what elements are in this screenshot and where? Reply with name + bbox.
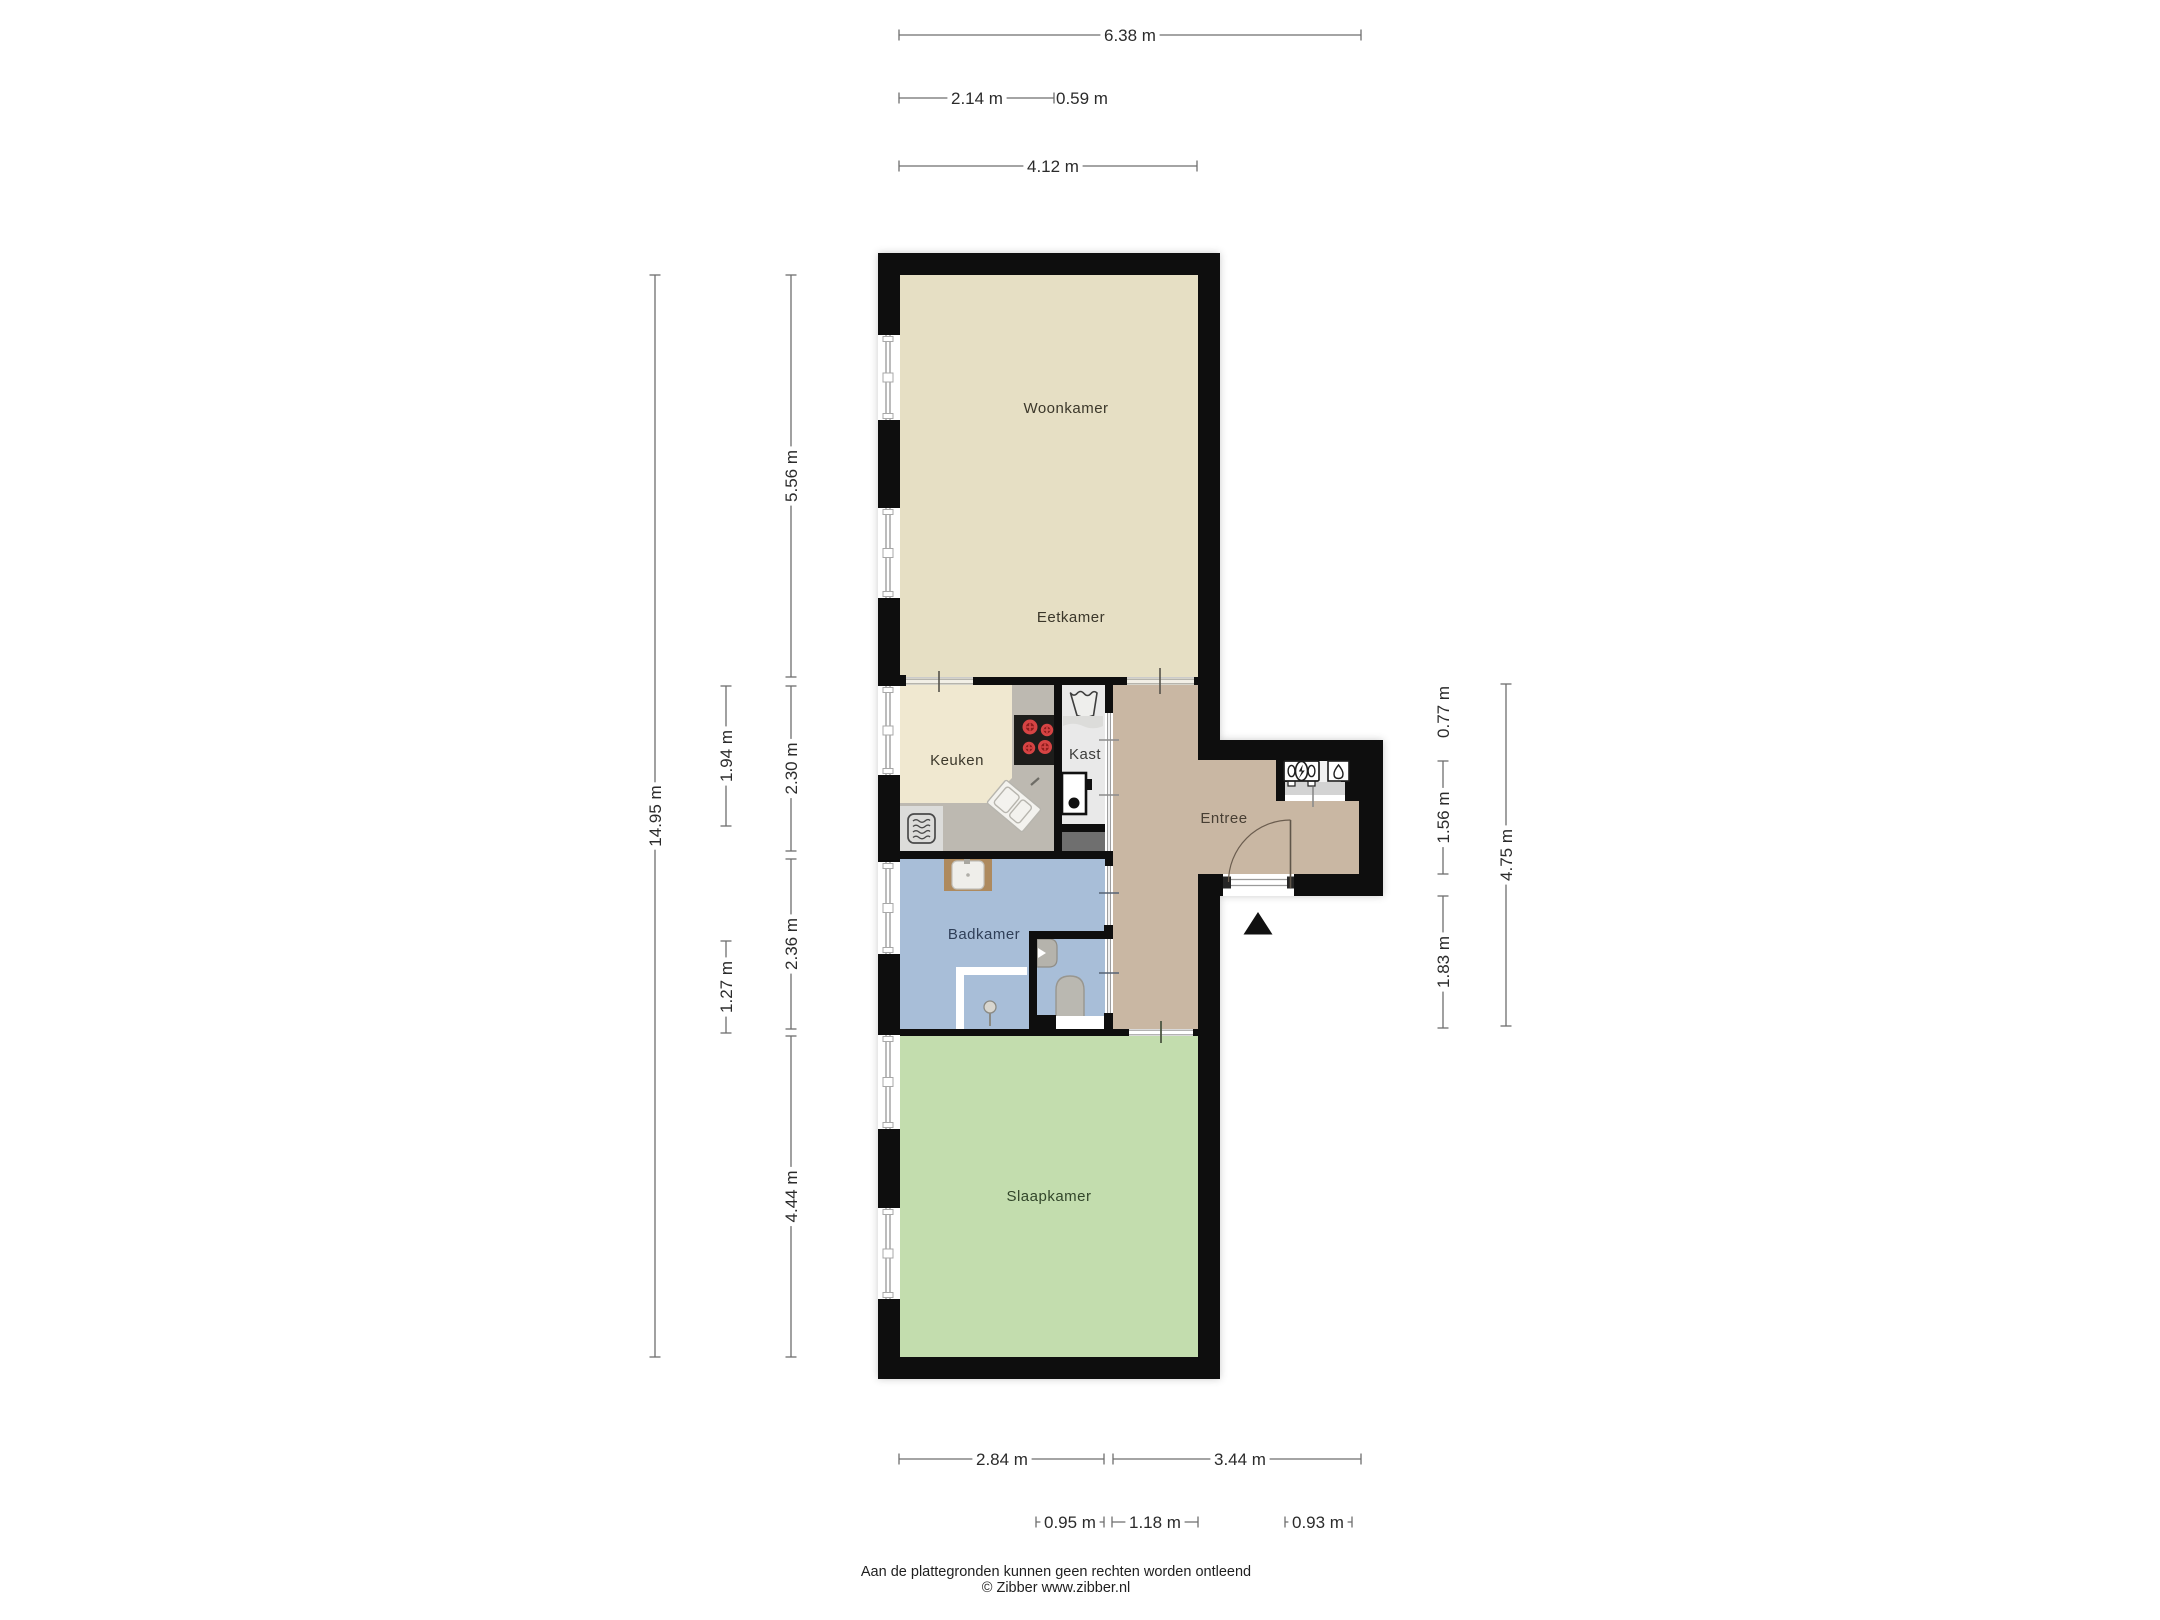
svg-text:0.59 m: 0.59 m: [1056, 89, 1108, 108]
svg-text:Keuken: Keuken: [930, 752, 984, 769]
svg-text:© Zibber www.zibber.nl: © Zibber www.zibber.nl: [982, 1580, 1131, 1596]
svg-text:4.44 m: 4.44 m: [782, 1171, 801, 1223]
svg-text:1.94 m: 1.94 m: [717, 730, 736, 782]
svg-text:Badkamer: Badkamer: [948, 926, 1020, 943]
svg-text:2.30 m: 2.30 m: [782, 743, 801, 795]
svg-text:1.18 m: 1.18 m: [1129, 1513, 1181, 1532]
svg-text:Slaapkamer: Slaapkamer: [1006, 1188, 1091, 1205]
svg-text:Woonkamer: Woonkamer: [1023, 400, 1108, 417]
svg-text:0.93 m: 0.93 m: [1292, 1513, 1344, 1532]
svg-text:6.38 m: 6.38 m: [1104, 26, 1156, 45]
svg-text:2.84 m: 2.84 m: [976, 1450, 1028, 1469]
svg-text:1.56 m: 1.56 m: [1434, 792, 1453, 844]
svg-text:1.83 m: 1.83 m: [1434, 936, 1453, 988]
svg-text:4.12 m: 4.12 m: [1027, 157, 1079, 176]
svg-text:2.14 m: 2.14 m: [951, 89, 1003, 108]
svg-text:Kast: Kast: [1069, 746, 1101, 763]
svg-text:0.77 m: 0.77 m: [1434, 686, 1453, 738]
svg-text:14.95 m: 14.95 m: [646, 785, 665, 846]
svg-text:3.44 m: 3.44 m: [1214, 1450, 1266, 1469]
svg-text:4.75 m: 4.75 m: [1497, 829, 1516, 881]
svg-text:Aan de plattegronden kunnen ge: Aan de plattegronden kunnen geen rechten…: [861, 1564, 1251, 1580]
svg-text:2.36 m: 2.36 m: [782, 918, 801, 970]
svg-text:Entree: Entree: [1200, 810, 1247, 827]
svg-text:0.95 m: 0.95 m: [1044, 1513, 1096, 1532]
svg-text:1.27 m: 1.27 m: [717, 961, 736, 1013]
svg-text:5.56 m: 5.56 m: [782, 450, 801, 502]
svg-text:Eetkamer: Eetkamer: [1037, 609, 1105, 626]
